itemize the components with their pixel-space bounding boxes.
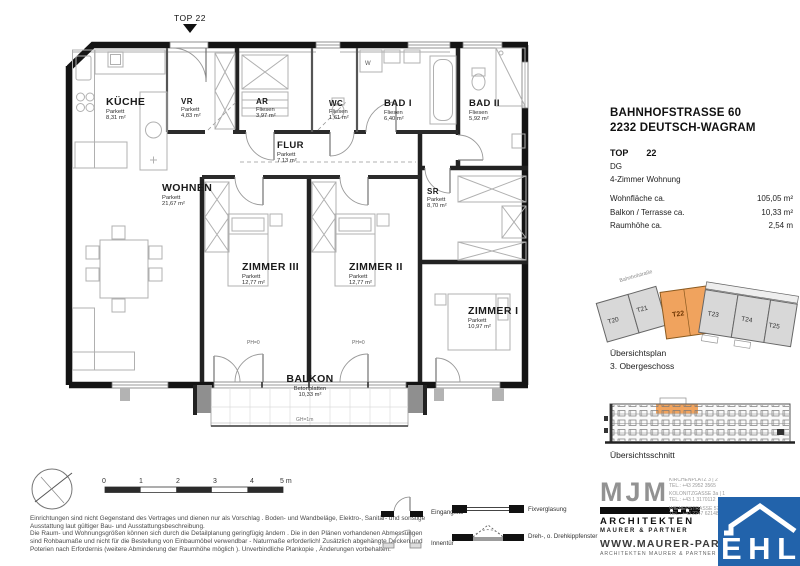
- scale-tick: 3: [213, 478, 217, 485]
- scale-tick: 2: [176, 478, 180, 485]
- area-metrics: Wohnfläche ca. 105,05 m² Balkon / Terras…: [610, 192, 793, 233]
- room-label-bad2: BAD II Fliesen 5,92 m²: [469, 99, 500, 123]
- metric-row: Wohnfläche ca. 105,05 m²: [610, 192, 793, 206]
- metric-row: Balkon / Terrasse ca. 10,33 m²: [610, 206, 793, 220]
- mjm-logo-text: MJM: [600, 477, 666, 506]
- address-line-2: 2232 DEUTSCH-WAGRAM: [610, 121, 756, 136]
- entrance-door-icon: [381, 496, 427, 520]
- floor-level: DG: [610, 162, 622, 171]
- scale-tick: 5 m: [280, 478, 292, 485]
- room-label-sr: SR Parkett 8,70 m²: [427, 188, 447, 210]
- apartment-type: 4-Zimmer Wohnung: [610, 175, 681, 184]
- scale-bar: 0 1 2 3 4 5 m: [102, 478, 292, 493]
- scale-tick: 4: [250, 478, 254, 485]
- overview-section-caption: Übersichtsschnitt: [610, 449, 675, 462]
- overview-plan-caption: Übersichtsplan 3. Obergeschoss: [610, 347, 674, 373]
- mjm-partner-label: MAURER & PARTNER: [600, 528, 688, 534]
- overview-section-drawing: [604, 398, 795, 443]
- ehl-logo: EHL: [718, 497, 800, 566]
- north-arrow-icon: [32, 469, 72, 509]
- room-label-zimmer2: ZIMMER II Parkett 12,77 m²: [349, 262, 403, 287]
- legend-item-tilt-turn-window: Dreh-, o. Drehkippfenster: [452, 524, 597, 544]
- annotation-ph-right: PH=0: [352, 340, 365, 346]
- tilt-turn-window-icon: [452, 524, 524, 544]
- legend-item-interior-door: Innentür: [381, 527, 454, 551]
- arrow-down-icon: [183, 24, 197, 33]
- room-label-kueche: KÜCHE Parkett 8,31 m²: [106, 97, 145, 122]
- ehl-logo-text: EHL: [721, 531, 797, 566]
- annotation-railing-height: GH=1m: [296, 417, 313, 423]
- project-address: BAHNHOFSTRASSE 60 2232 DEUTSCH-WAGRAM: [610, 106, 756, 136]
- room-label-wohnen: WOHNEN Parkett 21,67 m²: [162, 183, 212, 208]
- top-entrance-marker: TOP 22: [166, 13, 214, 33]
- room-label-balkon: BALKON Betonplatten 10,33 m²: [283, 374, 337, 399]
- room-label-zimmer3: ZIMMER III Parkett 12,77 m²: [242, 262, 299, 287]
- address-line-1: BAHNHOFSTRASSE 60: [610, 106, 756, 121]
- room-label-bad1: BAD I Fliesen 6,40 m²: [384, 99, 412, 123]
- interior-door-icon: [381, 527, 427, 551]
- room-label-flur: FLUR Parkett 7,13 m²: [277, 141, 304, 165]
- street-label: Bahnhofstraße: [619, 269, 653, 284]
- legend-item-fixed-glazing: Fixverglasung: [452, 501, 567, 517]
- room-label-wc: WC Fliesen 1,61 m²: [329, 100, 349, 122]
- top-marker-label: TOP 22: [166, 13, 214, 23]
- washer-label: W: [365, 61, 371, 67]
- mjm-logo: MJM: [600, 476, 670, 506]
- floor-plan-sheet: PH=0 PH=0 GH=1m W 0 1 2 3 4 5 m Bahnhofs…: [0, 0, 800, 566]
- room-label-ar: AR Fliesen 3,97 m²: [256, 98, 276, 120]
- fixed-glazing-icon: [452, 501, 524, 517]
- metric-row: Raumhöhe ca. 2,54 m: [610, 219, 793, 233]
- annotation-ph-left: PH=0: [247, 340, 260, 346]
- scale-tick: 1: [139, 478, 143, 485]
- scale-tick: 0: [102, 478, 106, 485]
- unit-number: TOP22: [610, 148, 656, 158]
- room-label-zimmer1: ZIMMER I Parkett 10,97 m²: [468, 306, 518, 331]
- maurer-partner-website-sub: ARCHITEKTEN MAURER & PARTNER ZT G: [600, 551, 734, 557]
- room-label-vr: VR Parkett 4,83 m²: [181, 98, 201, 120]
- overview-plan-map: Bahnhofstraße T20 T21 T22 T23 T24: [596, 269, 798, 355]
